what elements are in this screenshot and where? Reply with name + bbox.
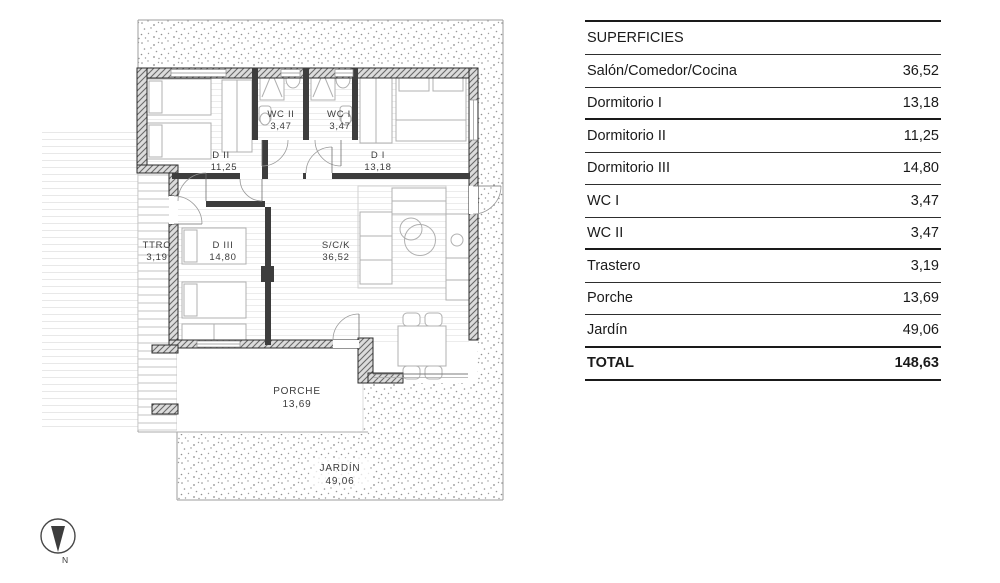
table-row: Porche 13,69	[585, 283, 941, 316]
table-header-label: SUPERFICIES	[587, 30, 684, 46]
compass-north-label: N	[62, 555, 68, 565]
table-row: Dormitorio I 13,18	[585, 88, 941, 121]
room-area-jardin: 49,06	[325, 476, 354, 487]
room-label-d3: D III	[213, 240, 234, 251]
floor-plan-svg: D II 11,25 D I 13,18 WC II 3,47 WC I 3,4…	[0, 0, 560, 578]
neighbor-structure	[42, 132, 138, 432]
room-area-d1: 13,18	[364, 162, 391, 173]
room-label-ttro: TTRO	[143, 240, 172, 251]
floor-plan: D II 11,25 D I 13,18 WC II 3,47 WC I 3,4…	[0, 0, 560, 578]
row-label: Dormitorio III	[587, 160, 670, 176]
room-area-ttro: 3,19	[146, 252, 167, 263]
room-label-wc2: WC II	[267, 109, 294, 120]
table-row: Dormitorio III 14,80	[585, 153, 941, 186]
row-value: 36,52	[903, 63, 939, 79]
row-value: 3,47	[911, 225, 939, 241]
room-label-porche: PORCHE	[273, 386, 321, 397]
table-row: Jardín 49,06	[585, 315, 941, 348]
page: { "plan": { "rooms": { "d2": {"name": "D…	[0, 0, 1000, 578]
row-label: Dormitorio I	[587, 95, 662, 111]
table-row: WC II 3,47	[585, 218, 941, 251]
row-value: 13,69	[903, 290, 939, 306]
room-area-wc1: 3,47	[329, 121, 350, 132]
row-label: Jardín	[587, 322, 627, 338]
row-label: Porche	[587, 290, 633, 306]
room-label-d1: D I	[371, 150, 385, 161]
row-value: 3,47	[911, 193, 939, 209]
row-value: 14,80	[903, 160, 939, 176]
room-label-jardin: JARDÍN	[320, 461, 361, 474]
row-label: Salón/Comedor/Cocina	[587, 63, 737, 79]
row-value: 13,18	[903, 95, 939, 111]
room-area-wc2: 3,47	[270, 121, 291, 132]
table-row: Trastero 3,19	[585, 250, 941, 283]
row-label: WC II	[587, 225, 623, 241]
room-area-sck: 36,52	[322, 252, 349, 263]
total-label: TOTAL	[587, 355, 634, 371]
compass: N	[41, 519, 75, 565]
north-arrow-icon	[51, 526, 65, 552]
table-row: Salón/Comedor/Cocina 36,52	[585, 55, 941, 88]
room-area-porche: 13,69	[282, 399, 311, 410]
room-label-wc1: WC I	[327, 109, 351, 120]
table-total-row: TOTAL 148,63	[585, 348, 941, 381]
room-area-d3: 14,80	[209, 252, 236, 263]
total-value: 148,63	[895, 355, 939, 371]
row-value: 11,25	[904, 128, 939, 144]
row-label: Dormitorio II	[587, 128, 666, 144]
room-label-sck: S/C/K	[322, 240, 350, 251]
surfaces-table: SUPERFICIES Salón/Comedor/Cocina 36,52 D…	[585, 20, 941, 381]
row-value: 49,06	[903, 322, 939, 338]
row-value: 3,19	[911, 258, 939, 274]
room-area-d2: 11,25	[211, 162, 238, 173]
table-row: Dormitorio II 11,25	[585, 120, 941, 153]
row-label: Trastero	[587, 258, 640, 274]
room-label-d2: D II	[212, 150, 230, 161]
row-label: WC I	[587, 193, 619, 209]
table-row: WC I 3,47	[585, 185, 941, 218]
table-header-row: SUPERFICIES	[585, 22, 941, 55]
